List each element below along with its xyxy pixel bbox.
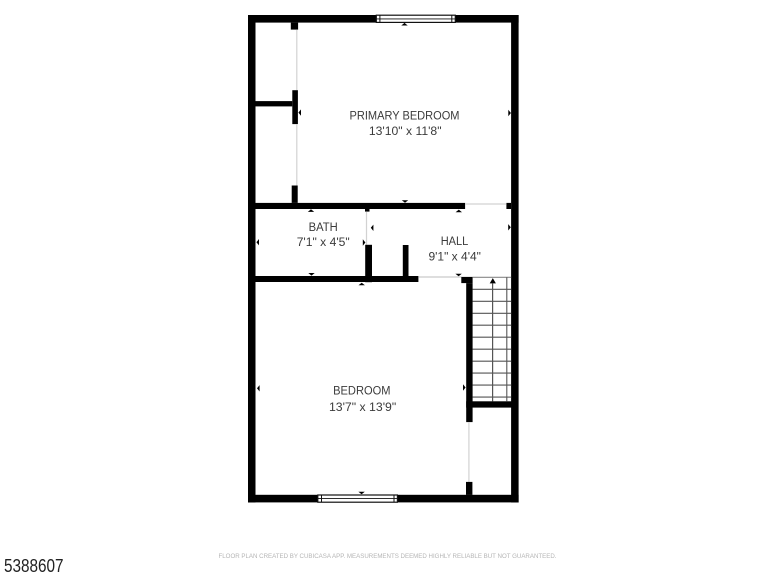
svg-text:PRIMARY BEDROOM: PRIMARY BEDROOM <box>350 109 460 123</box>
svg-text:7'1" x 4'5": 7'1" x 4'5" <box>297 235 350 249</box>
svg-text:HALL: HALL <box>441 234 469 248</box>
svg-text:FLOOR PLAN CREATED BY CUBICASA: FLOOR PLAN CREATED BY CUBICASA APP. MEAS… <box>219 553 557 560</box>
svg-text:13'7" x 13'9": 13'7" x 13'9" <box>329 400 396 414</box>
svg-text:BATH: BATH <box>309 220 338 234</box>
svg-text:5388607: 5388607 <box>4 555 64 576</box>
svg-text:BEDROOM: BEDROOM <box>333 384 390 398</box>
svg-text:9'1" x 4'4": 9'1" x 4'4" <box>428 250 481 264</box>
svg-text:13'10" x 11'8": 13'10" x 11'8" <box>369 124 442 138</box>
